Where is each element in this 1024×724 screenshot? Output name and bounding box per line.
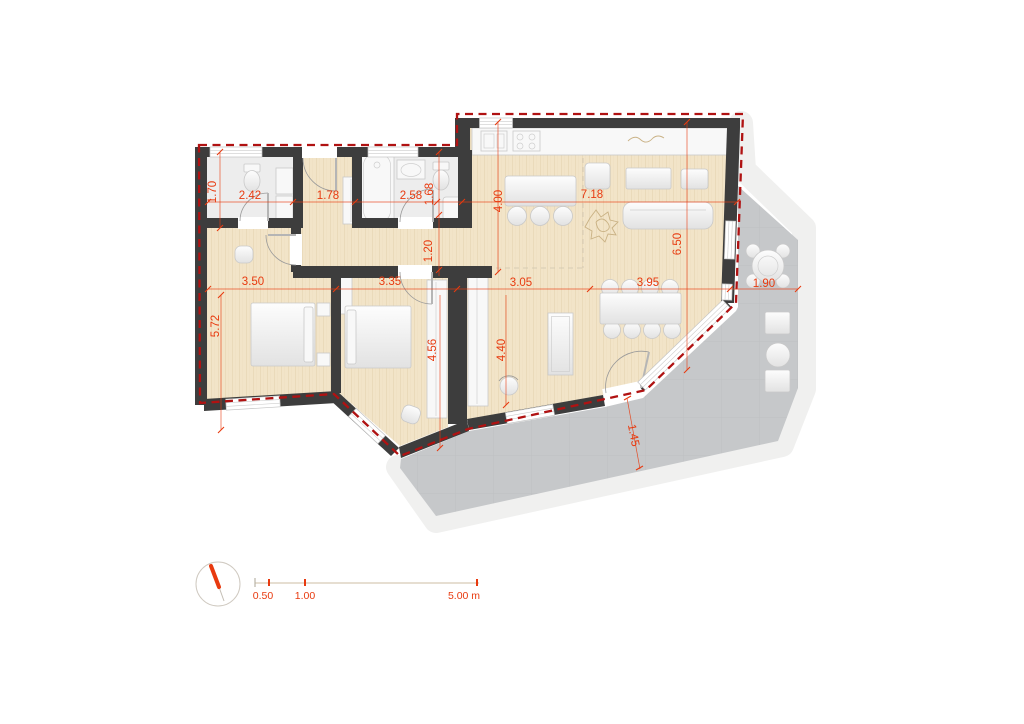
dim-living-width: 7.18: [581, 189, 603, 201]
bedroom2-bed: [345, 306, 411, 368]
dim-study-depth: 4.40: [496, 339, 508, 361]
bathtub: [360, 150, 394, 226]
dim-study-width: 3.05: [510, 277, 532, 289]
hallway-floor: [293, 228, 492, 268]
window: [724, 221, 735, 259]
floor-plan-page: 1.70 2.42 1.78 2.58 1.68 4.00 7.18 6.50 …: [0, 0, 1024, 724]
bar-stool: [531, 207, 550, 226]
wc-cabinet: [276, 168, 293, 194]
sofa: [623, 202, 713, 229]
terrace-stool: [765, 370, 790, 392]
dim-bath-width: 2.58: [400, 190, 422, 202]
dim-bath-nook-depth: 1.68: [424, 183, 436, 205]
north-arrow: [196, 562, 240, 606]
kitchen-island: [505, 176, 576, 226]
wc-toilet: [244, 164, 260, 192]
nightstand: [317, 303, 330, 316]
bedroom1-chair: [235, 246, 253, 263]
kitchen-stove: [513, 131, 540, 151]
dim-bedroom2-depth: 4.56: [427, 339, 439, 361]
dim-hall-width: 1.20: [423, 240, 435, 262]
scale-label-050: 0.50: [253, 590, 274, 602]
window: [210, 147, 262, 157]
window: [480, 118, 513, 128]
dining-table: [600, 293, 681, 324]
dim-bedroom2-width: 3.35: [379, 276, 401, 288]
terrace-side-table: [766, 343, 790, 367]
bath-sink: [397, 160, 425, 179]
kitchen-counter: [472, 128, 737, 155]
nightstand: [317, 353, 330, 366]
bar-stool: [508, 207, 527, 226]
desk: [548, 313, 573, 375]
bar-stool: [554, 207, 573, 226]
scale-label-500: 5.00 m: [448, 590, 480, 602]
scale-bar: 0.50 1.00 5.00 m: [253, 578, 481, 602]
floor-plan-canvas: 1.70 2.42 1.78 2.58 1.68 4.00 7.18 6.50 …: [0, 0, 1024, 724]
kitchen-sink: [481, 131, 507, 151]
dim-entry-width: 1.78: [317, 190, 339, 202]
living-wardrobe: [468, 274, 488, 406]
dim-wc-depth: 1.70: [207, 181, 219, 203]
dim-wc-width: 2.42: [239, 190, 261, 202]
window: [368, 147, 418, 157]
pillow: [347, 310, 356, 364]
dim-kitchen-depth: 4.00: [493, 190, 505, 212]
dim-living-depth: 6.50: [672, 233, 684, 255]
dim-terrace-width: 1.90: [753, 278, 775, 290]
coffee-table: [626, 168, 671, 189]
terrace-stool: [765, 312, 790, 334]
dim-bedroom1-depth: 5.72: [210, 315, 222, 337]
dim-bedroom1-width: 3.50: [242, 276, 264, 288]
dim-dining-width: 3.95: [637, 277, 659, 289]
pillow: [304, 307, 313, 362]
armchair: [585, 163, 610, 189]
side-chair: [681, 169, 708, 189]
scale-label-100: 1.00: [295, 590, 316, 602]
